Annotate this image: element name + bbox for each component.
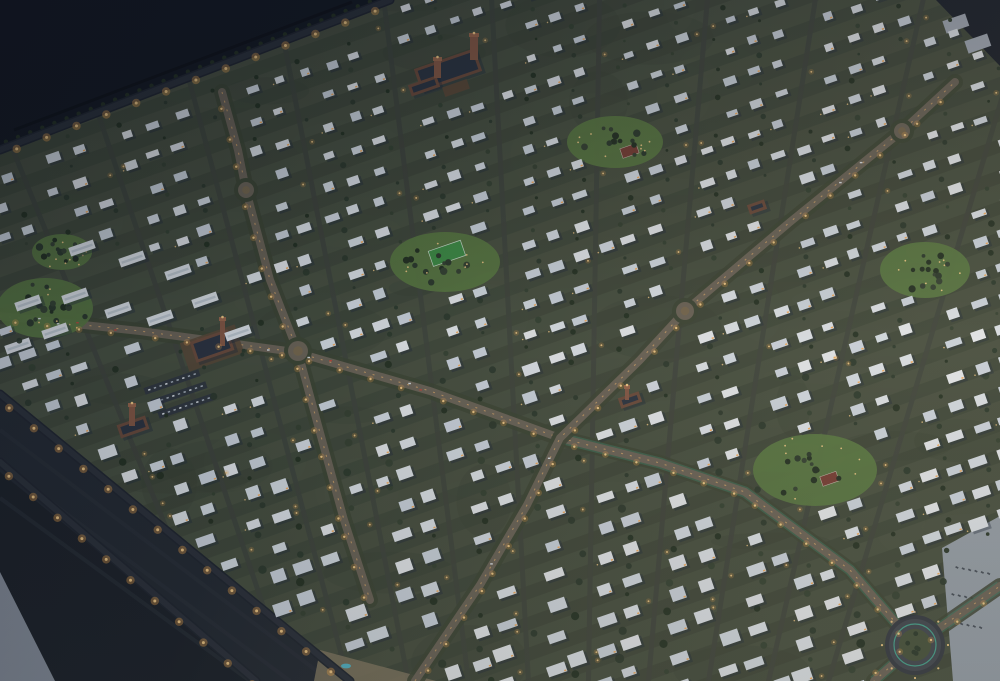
masterplan-scene bbox=[0, 0, 1000, 681]
atmosphere-overlay bbox=[0, 0, 1000, 681]
aerial-render: Dusk aerial rendering of a large master-… bbox=[0, 0, 1000, 681]
